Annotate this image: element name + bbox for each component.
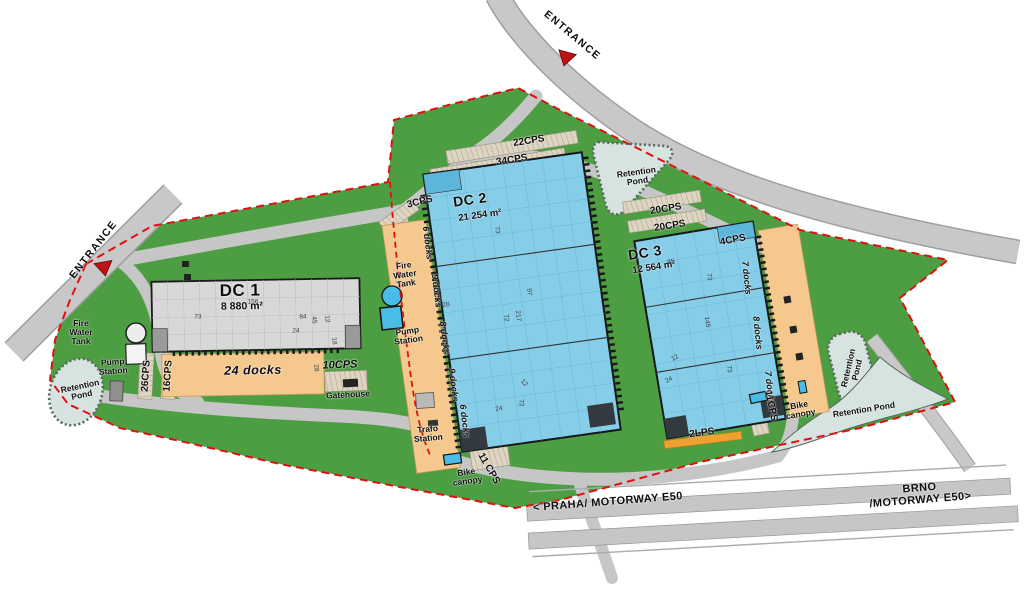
dc1-core-west	[152, 329, 167, 352]
dc1-core-east	[345, 325, 360, 348]
dc1-building	[151, 278, 360, 352]
bike-canopy-west-icon	[443, 453, 461, 465]
dc3-group	[634, 214, 829, 438]
trafo-station-icon	[428, 420, 438, 427]
pump-station-mid-icon	[380, 306, 403, 330]
fire-water-tank-west-icon	[126, 323, 146, 343]
site-plan-drawing	[0, 0, 1024, 589]
roadside-equipment-icon-c	[795, 353, 803, 361]
dc2-core-southwest	[459, 426, 488, 451]
utility-shed-icon	[416, 392, 435, 408]
gatehouse-icon	[343, 379, 358, 388]
site-plan: ENTRANCE ENTRANCE < PRAHA/ MOTORWAY E50 …	[0, 0, 1024, 589]
west-shed-icon	[110, 381, 124, 401]
dc1-docks-apron	[162, 352, 325, 397]
fire-water-tank-mid-icon	[382, 286, 402, 306]
pump-station-west-icon	[126, 344, 147, 365]
dc1-equipment-icon-a	[182, 261, 189, 267]
dc3-core-southwest	[664, 415, 689, 438]
roadside-equipment-icon-b	[789, 326, 797, 334]
roadside-shelter-icon	[798, 380, 807, 393]
roadside-equipment-icon-a	[783, 296, 791, 304]
dc2-core-southeast	[587, 402, 616, 427]
dc1-equipment-icon-b	[184, 274, 191, 280]
